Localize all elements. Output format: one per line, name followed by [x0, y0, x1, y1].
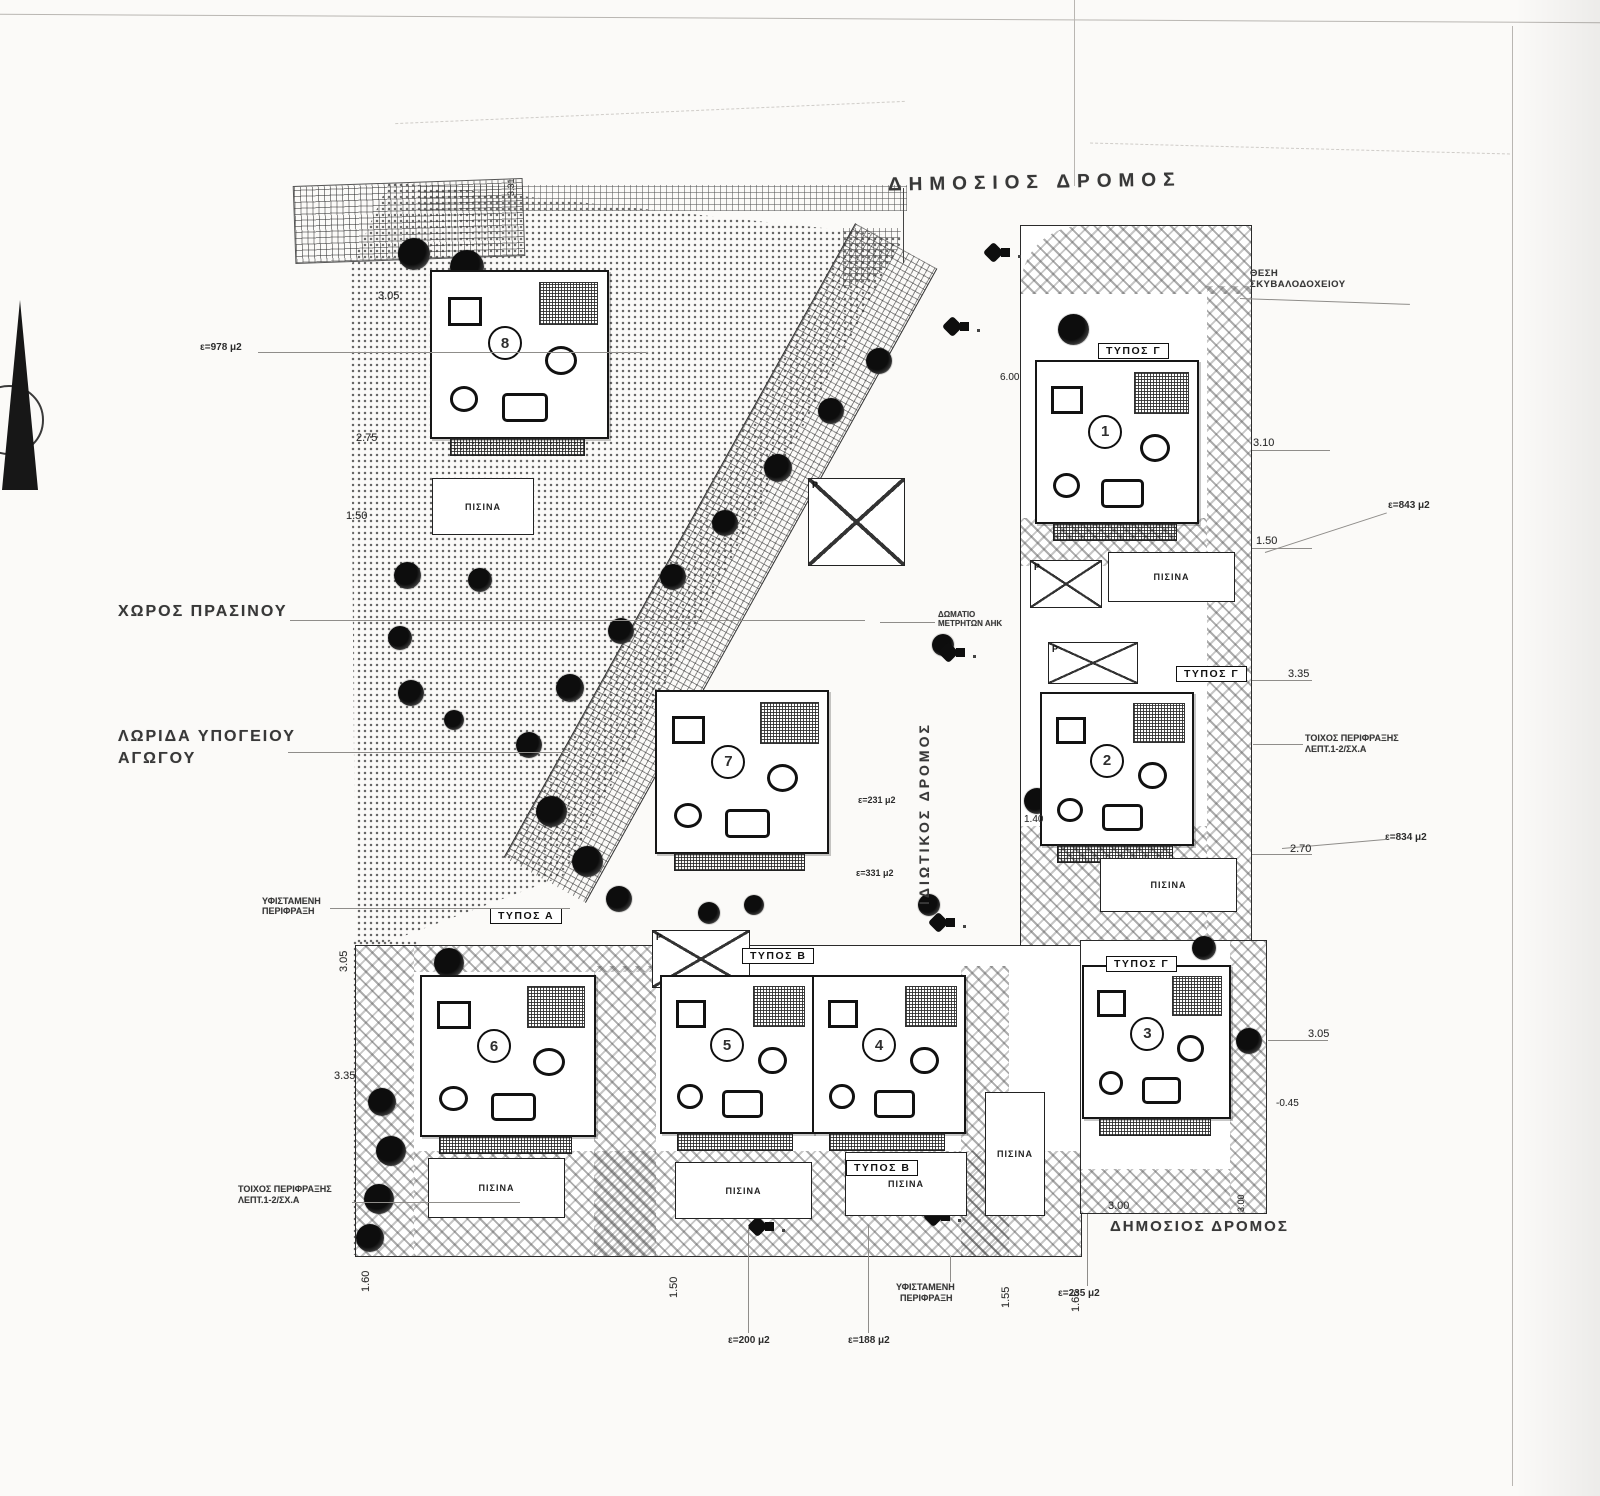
- furniture-circle: [674, 803, 702, 828]
- building-number-badge: 8: [488, 326, 522, 360]
- tree-icon: [744, 895, 764, 915]
- building-5: 5: [660, 975, 814, 1134]
- green-space-label: ΧΩΡΟΣ ΠΡΑΣΙΝΟΥ: [118, 603, 288, 621]
- veranda-deck: [450, 438, 585, 456]
- building-8: 8: [430, 270, 609, 439]
- pool: ΠΙΣΙΝΑ: [432, 478, 534, 535]
- furniture-bar: [874, 1090, 915, 1118]
- type-label-c-building-3: ΤΥΠΟΣ Γ: [1106, 956, 1177, 972]
- dim-3-35-left: 3.35: [334, 1070, 355, 1082]
- area-label-200: ε=200 μ2: [728, 1335, 770, 1346]
- scanned-site-plan: { "roads": { "public_top": "ΔΗΜΟΣΙΟΣ ΔΡΟ…: [0, 0, 1600, 1496]
- dim-3-00-vertical: 3.00: [1236, 1194, 1246, 1212]
- fence-wall-right-label-2: ΛΕΠΤ.1-2/ΣΧ.Α: [1305, 744, 1366, 754]
- furniture-square: [437, 1001, 471, 1029]
- parking-label: P: [812, 480, 818, 490]
- tree-icon: [364, 1184, 394, 1214]
- furniture-bar: [725, 809, 770, 837]
- area-235-leader: [1087, 1214, 1088, 1286]
- type-label-c-building-1: ΤΥΠΟΣ Γ: [1098, 343, 1169, 359]
- furniture-bar: [491, 1093, 537, 1121]
- tree-icon: [712, 510, 738, 536]
- tree-icon: [444, 710, 464, 730]
- tree-icon: [394, 562, 421, 589]
- tree-icon: [398, 680, 424, 706]
- dim-leader-335r: [1252, 680, 1312, 681]
- parking-label: P: [656, 932, 662, 942]
- roof-hatch: [760, 702, 818, 744]
- parking-label: P: [1034, 562, 1040, 572]
- tree-icon: [866, 348, 892, 374]
- type-label-b-pool: ΤΥΠΟΣ Β: [846, 1160, 918, 1176]
- building-number-badge: 4: [862, 1028, 896, 1062]
- pipe-strip-label-1: ΛΩΡΙΔΑ ΥΠΟΓΕΙΟΥ: [118, 728, 296, 746]
- dim-1-50-right: 1.50: [1256, 535, 1277, 547]
- parking-label: P: [1052, 644, 1058, 654]
- roof-hatch: [539, 282, 599, 325]
- contour-line-2: [1090, 143, 1510, 155]
- building-number-badge: 2: [1090, 744, 1124, 778]
- furniture-circle: [439, 1086, 467, 1111]
- furniture-square: [828, 1000, 858, 1028]
- building-2: 2: [1040, 692, 1194, 846]
- pool: ΠΙΣΙΝΑ: [428, 1158, 565, 1218]
- dim-3-10-right: 3.10: [1253, 437, 1274, 449]
- veranda-deck: [1099, 1118, 1211, 1136]
- fence-wall-left-label-2: ΛΕΠΤ.1-2/ΣΧ.Α: [238, 1195, 299, 1205]
- furniture-circle: [829, 1084, 855, 1109]
- building-number-badge: 7: [711, 745, 745, 779]
- furniture-square: [1051, 386, 1083, 414]
- furniture-circle: [1099, 1071, 1124, 1095]
- pool-label: ΠΙΣΙΝΑ: [726, 1186, 762, 1196]
- dim-1-40-road: 1.40: [1024, 814, 1043, 825]
- building-1: 1: [1035, 360, 1199, 524]
- dim-2-75-left: 2.75: [356, 432, 377, 444]
- area-label-843: ε=843 μ2: [1388, 500, 1430, 511]
- scan-top-line: [0, 14, 1600, 23]
- furniture-ring: [910, 1047, 939, 1075]
- roof-hatch: [1172, 976, 1222, 1016]
- existing-fence-bottom-label-2: ΠΕΡΙΦΡΑΞΗ: [900, 1293, 953, 1303]
- roof-hatch: [1133, 703, 1185, 743]
- fence-wall-right-label-1: ΤΟΙΧΟΣ ΠΕΡΙΦΡΑΞΗΣ: [1305, 733, 1399, 743]
- furniture-ring: [758, 1047, 787, 1075]
- tree-icon: [764, 454, 792, 482]
- dim-3-05-top-left: 3.05: [378, 290, 399, 302]
- veranda-deck: [1053, 523, 1177, 541]
- building-7: 7: [655, 690, 829, 854]
- dim-3-05-bottom-right: 3.05: [1308, 1028, 1329, 1040]
- tree-icon: [1236, 1028, 1262, 1054]
- tree-icon: [468, 568, 492, 592]
- furniture-circle: [1057, 798, 1083, 822]
- dim-3-31-top: 3.31: [506, 178, 516, 196]
- dim-leader-310: [1252, 450, 1330, 451]
- veranda-deck: [674, 853, 805, 871]
- pipe-strip-label-2: ΑΓΩΓΟΥ: [118, 750, 196, 768]
- furniture-ring: [767, 764, 799, 792]
- dim-1-50-left: 1.50: [346, 510, 367, 522]
- area-188-leader: [868, 1226, 869, 1333]
- road-left-edge: [903, 188, 904, 263]
- fence-wall-left-leader: [352, 1202, 520, 1203]
- meter-room-leader: [880, 622, 935, 623]
- dim-leader-150r: [1252, 548, 1312, 549]
- dim-3-05-left-vertical: 3.05: [338, 951, 350, 972]
- bin-position-leader: [1240, 298, 1410, 305]
- tree-icon: [1192, 936, 1216, 960]
- pool: ΠΙΣΙΝΑ: [1100, 858, 1237, 912]
- furniture-circle: [1053, 473, 1080, 498]
- furniture-ring: [545, 346, 577, 375]
- scan-right-line: [1512, 26, 1513, 1486]
- building-number-badge: 1: [1088, 415, 1122, 449]
- dim-1-60-bottom: 1.60: [360, 1271, 372, 1292]
- dim-1-50-bottom: 1.50: [668, 1277, 680, 1298]
- manhole-icon: [945, 318, 975, 338]
- tree-icon: [698, 902, 720, 924]
- type-label-a-building-6: ΤΥΠΟΣ Α: [490, 908, 562, 924]
- pool-label: ΠΙΣΙΝΑ: [997, 1149, 1033, 1159]
- dim-2-70-right: 2.70: [1290, 843, 1311, 855]
- pool-label: ΠΙΣΙΝΑ: [479, 1183, 515, 1193]
- area-843-leader: [1265, 512, 1387, 553]
- green-space-leader: [290, 620, 865, 621]
- parking-ramp: P: [808, 478, 905, 566]
- furniture-square: [448, 297, 482, 326]
- manhole-icon: [986, 244, 1016, 264]
- dim-3-35-right: 3.35: [1288, 668, 1309, 680]
- building-number-badge: 3: [1130, 1017, 1164, 1051]
- roof-hatch: [753, 986, 805, 1027]
- tree-icon: [608, 618, 634, 644]
- pipe-strip-leader: [288, 752, 568, 753]
- furniture-bar: [722, 1090, 763, 1118]
- veranda-deck: [439, 1136, 572, 1154]
- public-road-top-label: ΔΗΜΟΣΙΟΣ ΔΡΟΜΟΣ: [888, 169, 1182, 196]
- roof-hatch: [905, 986, 957, 1027]
- dim-leader-305br: [1268, 1040, 1328, 1041]
- fence-wall-left-label-1: ΤΟΙΧΟΣ ΠΕΡΙΦΡΑΞΗΣ: [238, 1184, 332, 1194]
- pool-label: ΠΙΣΙΝΑ: [1154, 572, 1190, 582]
- furniture-square: [676, 1000, 706, 1028]
- tree-icon: [1058, 314, 1089, 345]
- furniture-square: [1056, 717, 1086, 744]
- parking-ramp: P: [1030, 560, 1102, 608]
- type-label-b-building-5: ΤΥΠΟΣ Β: [742, 948, 814, 964]
- tree-icon: [606, 886, 632, 912]
- bin-position-label-2: ΣΚΥΒΑΛΟΔΟΧΕΙΟΥ: [1250, 279, 1346, 290]
- veranda-deck: [677, 1133, 793, 1151]
- tree-icon: [556, 674, 584, 702]
- roof-hatch: [1134, 372, 1189, 414]
- furniture-bar: [1142, 1077, 1181, 1104]
- dim-6-00-road: 6.00: [1000, 372, 1019, 383]
- dim-minus-0-45: -0.45: [1276, 1098, 1299, 1109]
- tree-icon: [818, 398, 844, 424]
- manhole-icon: [941, 644, 971, 664]
- area-label-834: ε=834 μ2: [1385, 832, 1427, 843]
- building-4: 4: [812, 975, 966, 1134]
- tree-icon: [572, 846, 603, 877]
- roof-hatch: [527, 986, 586, 1028]
- tree-icon: [516, 732, 542, 758]
- tree-icon: [388, 626, 412, 650]
- parking-ramp: P: [1048, 642, 1138, 684]
- furniture-ring: [1140, 434, 1170, 462]
- furniture-circle: [450, 386, 479, 412]
- pool-label: ΠΙΣΙΝΑ: [888, 1179, 924, 1189]
- furniture-bar: [502, 393, 548, 422]
- area-978-leader: [258, 352, 648, 353]
- manhole-icon: [750, 1218, 780, 1238]
- furniture-square: [1097, 990, 1126, 1017]
- existing-fence-left-label-2: ΠΕΡΙΦΡΑΞΗ: [262, 906, 315, 916]
- tree-icon: [356, 1224, 384, 1252]
- existing-fence-bottom-leader: [950, 1256, 951, 1282]
- pool: ΠΙΣΙΝΑ: [675, 1162, 812, 1219]
- area-200-leader: [748, 1226, 749, 1333]
- pool-label: ΠΙΣΙΝΑ: [465, 502, 501, 512]
- furniture-ring: [1138, 762, 1167, 789]
- furniture-bar: [1101, 479, 1144, 507]
- existing-fence-left-label-1: ΥΦΙΣΤΑΜΕΝΗ: [262, 896, 321, 906]
- veranda-deck: [829, 1133, 945, 1151]
- furniture-ring: [533, 1048, 565, 1076]
- private-road-label: ΙΔΙΩΤΙΚΟΣ ΔΡΟΜΟΣ: [916, 722, 932, 905]
- bin-position-label-1: ΘΕΣΗ: [1250, 268, 1278, 279]
- contour-line-1: [395, 101, 905, 124]
- building-number-badge: 6: [477, 1029, 511, 1063]
- existing-fence-left-leader: [330, 908, 570, 909]
- furniture-ring: [1177, 1035, 1205, 1062]
- tree-icon: [434, 948, 464, 978]
- dim-3-00-bottom: 3.00: [1108, 1200, 1129, 1212]
- building-number-badge: 5: [710, 1028, 744, 1062]
- area-label-331: ε=331 μ2: [856, 868, 894, 878]
- furniture-square: [672, 716, 705, 744]
- type-label-c-building-2: ΤΥΠΟΣ Γ: [1176, 666, 1247, 682]
- fence-wall-right-leader: [1253, 744, 1303, 745]
- meter-room-label-1: ΔΩΜΑΤΙΟ: [938, 610, 975, 619]
- pool: ΠΙΣΙΝΑ: [985, 1092, 1045, 1216]
- manhole-icon: [931, 914, 961, 934]
- public-road-bottom-label: ΔΗΜΟΣΙΟΣ ΔΡΟΜΟΣ: [1110, 1218, 1289, 1235]
- dim-1-55-bottom: 1.55: [1000, 1287, 1012, 1308]
- sidewalk-strip-top: [420, 185, 907, 211]
- area-label-978: ε=978 μ2: [200, 342, 242, 353]
- dim-1-65-bottom: 1.65: [1070, 1291, 1082, 1312]
- pool-label: ΠΙΣΙΝΑ: [1151, 880, 1187, 890]
- tree-icon: [376, 1136, 406, 1166]
- meter-room-label-2: ΜΕΤΡΗΤΩΝ ΑΗΚ: [938, 619, 1002, 628]
- furniture-bar: [1102, 804, 1143, 831]
- tree-icon: [660, 564, 686, 590]
- building-6: 6: [420, 975, 596, 1137]
- tree-icon: [536, 796, 567, 827]
- area-label-188: ε=188 μ2: [848, 1335, 890, 1346]
- scan-center-vertical-line: [1074, 0, 1075, 186]
- building-3: 3: [1082, 965, 1231, 1119]
- scan-right-shade: [1515, 0, 1600, 1496]
- existing-fence-bottom-label-1: ΥΦΙΣΤΑΜΕΝΗ: [896, 1282, 955, 1292]
- tree-icon: [398, 238, 430, 270]
- tree-icon: [368, 1088, 396, 1116]
- pool: ΠΙΣΙΝΑ: [1108, 552, 1235, 602]
- area-label-231: ε=231 μ2: [858, 795, 896, 805]
- furniture-circle: [677, 1084, 703, 1109]
